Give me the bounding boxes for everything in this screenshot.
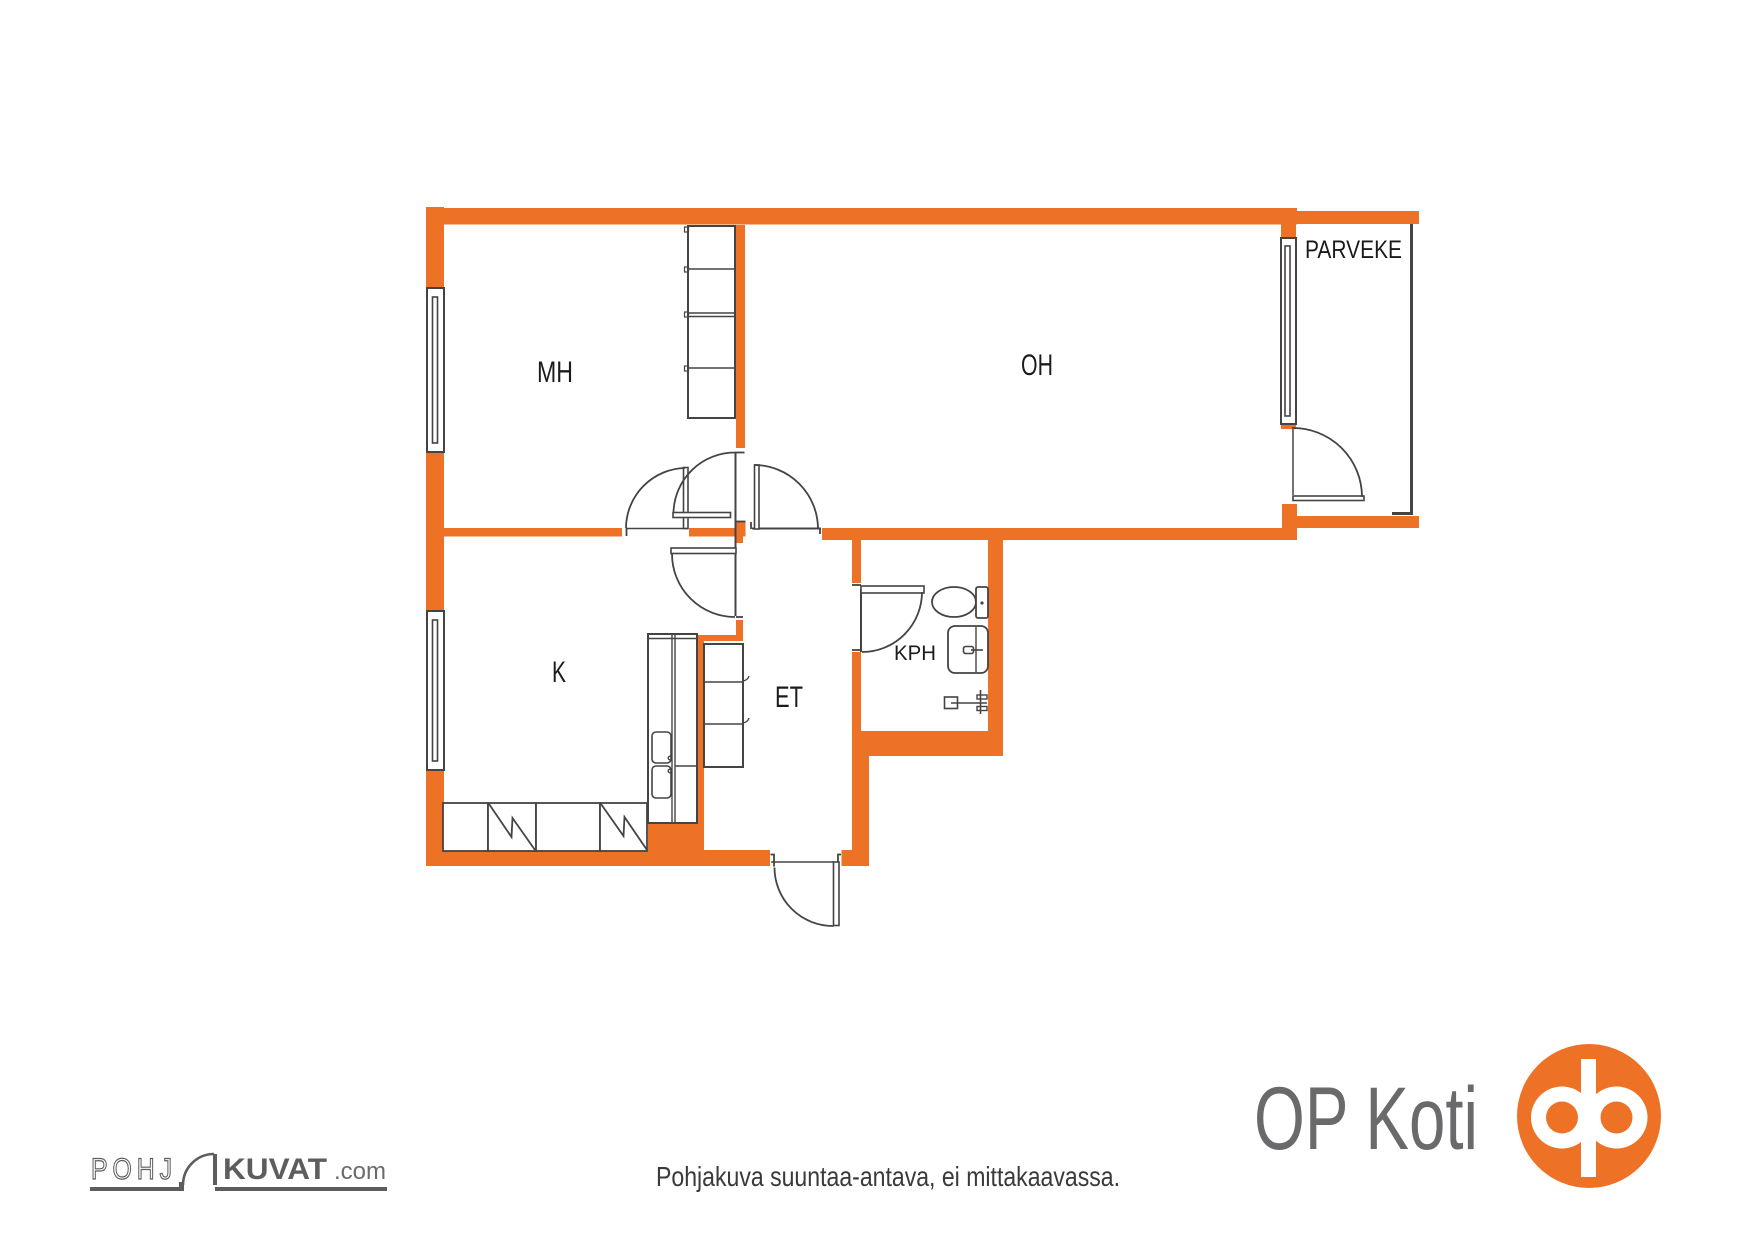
svg-text:.com: .com	[334, 1158, 386, 1185]
svg-text:KUVAT: KUVAT	[223, 1153, 327, 1186]
svg-text:OH: OH	[1021, 349, 1053, 382]
svg-text:KPH: KPH	[894, 642, 936, 665]
svg-text:OP Koti: OP Koti	[1254, 1068, 1478, 1168]
svg-text:POHJ: POHJ	[91, 1153, 177, 1186]
svg-text:MH: MH	[537, 356, 573, 389]
svg-text:K: K	[552, 656, 566, 689]
svg-text:ET: ET	[775, 681, 803, 714]
svg-text:Pohjakuva suuntaa-antava, ei m: Pohjakuva suuntaa-antava, ei mittakaavas…	[656, 1161, 1120, 1192]
svg-text:PARVEKE: PARVEKE	[1305, 236, 1402, 264]
